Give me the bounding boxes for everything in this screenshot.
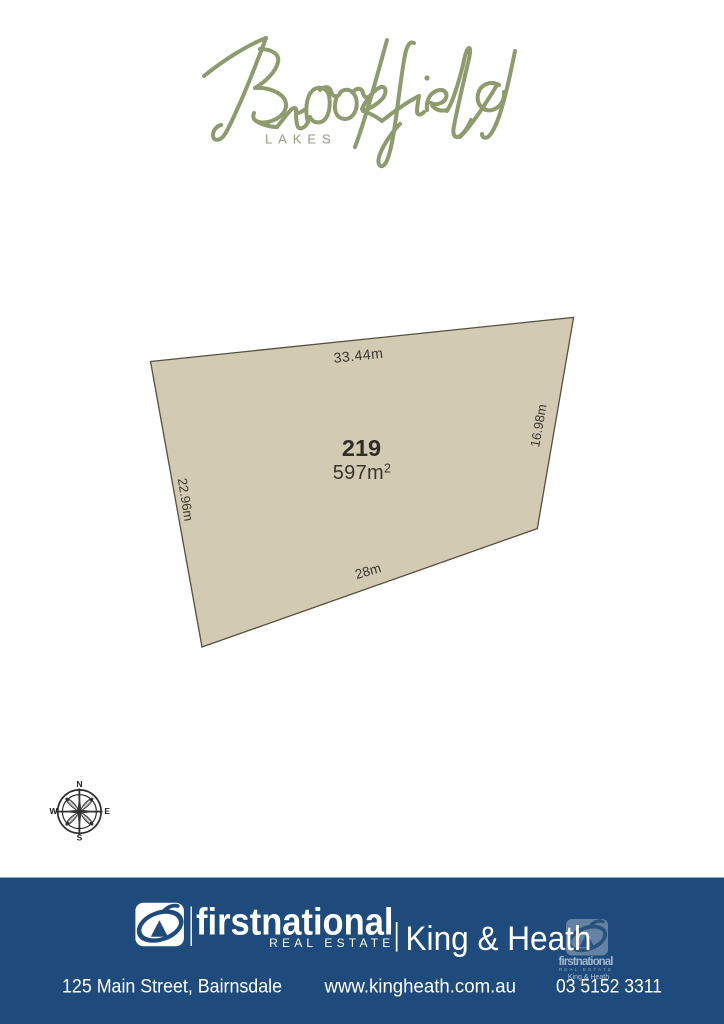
svg-text:LAKES: LAKES xyxy=(265,132,338,147)
svg-text:N: N xyxy=(76,779,82,789)
svg-text:www.kingheath.com.au: www.kingheath.com.au xyxy=(324,976,516,997)
svg-text:597m2: 597m2 xyxy=(333,462,392,485)
svg-text:219: 219 xyxy=(342,435,381,461)
svg-text:E: E xyxy=(104,806,110,816)
svg-text:03 5152 3311: 03 5152 3311 xyxy=(556,976,662,997)
svg-text:125 Main Street, Bairnsdale: 125 Main Street, Bairnsdale xyxy=(62,976,282,997)
svg-text:REAL ESTATE: REAL ESTATE xyxy=(269,936,394,950)
svg-text:REAL ESTATE: REAL ESTATE xyxy=(559,967,614,972)
svg-text:King & Heath: King & Heath xyxy=(406,920,592,958)
svg-text:S: S xyxy=(77,832,83,842)
svg-text:W: W xyxy=(49,806,58,816)
